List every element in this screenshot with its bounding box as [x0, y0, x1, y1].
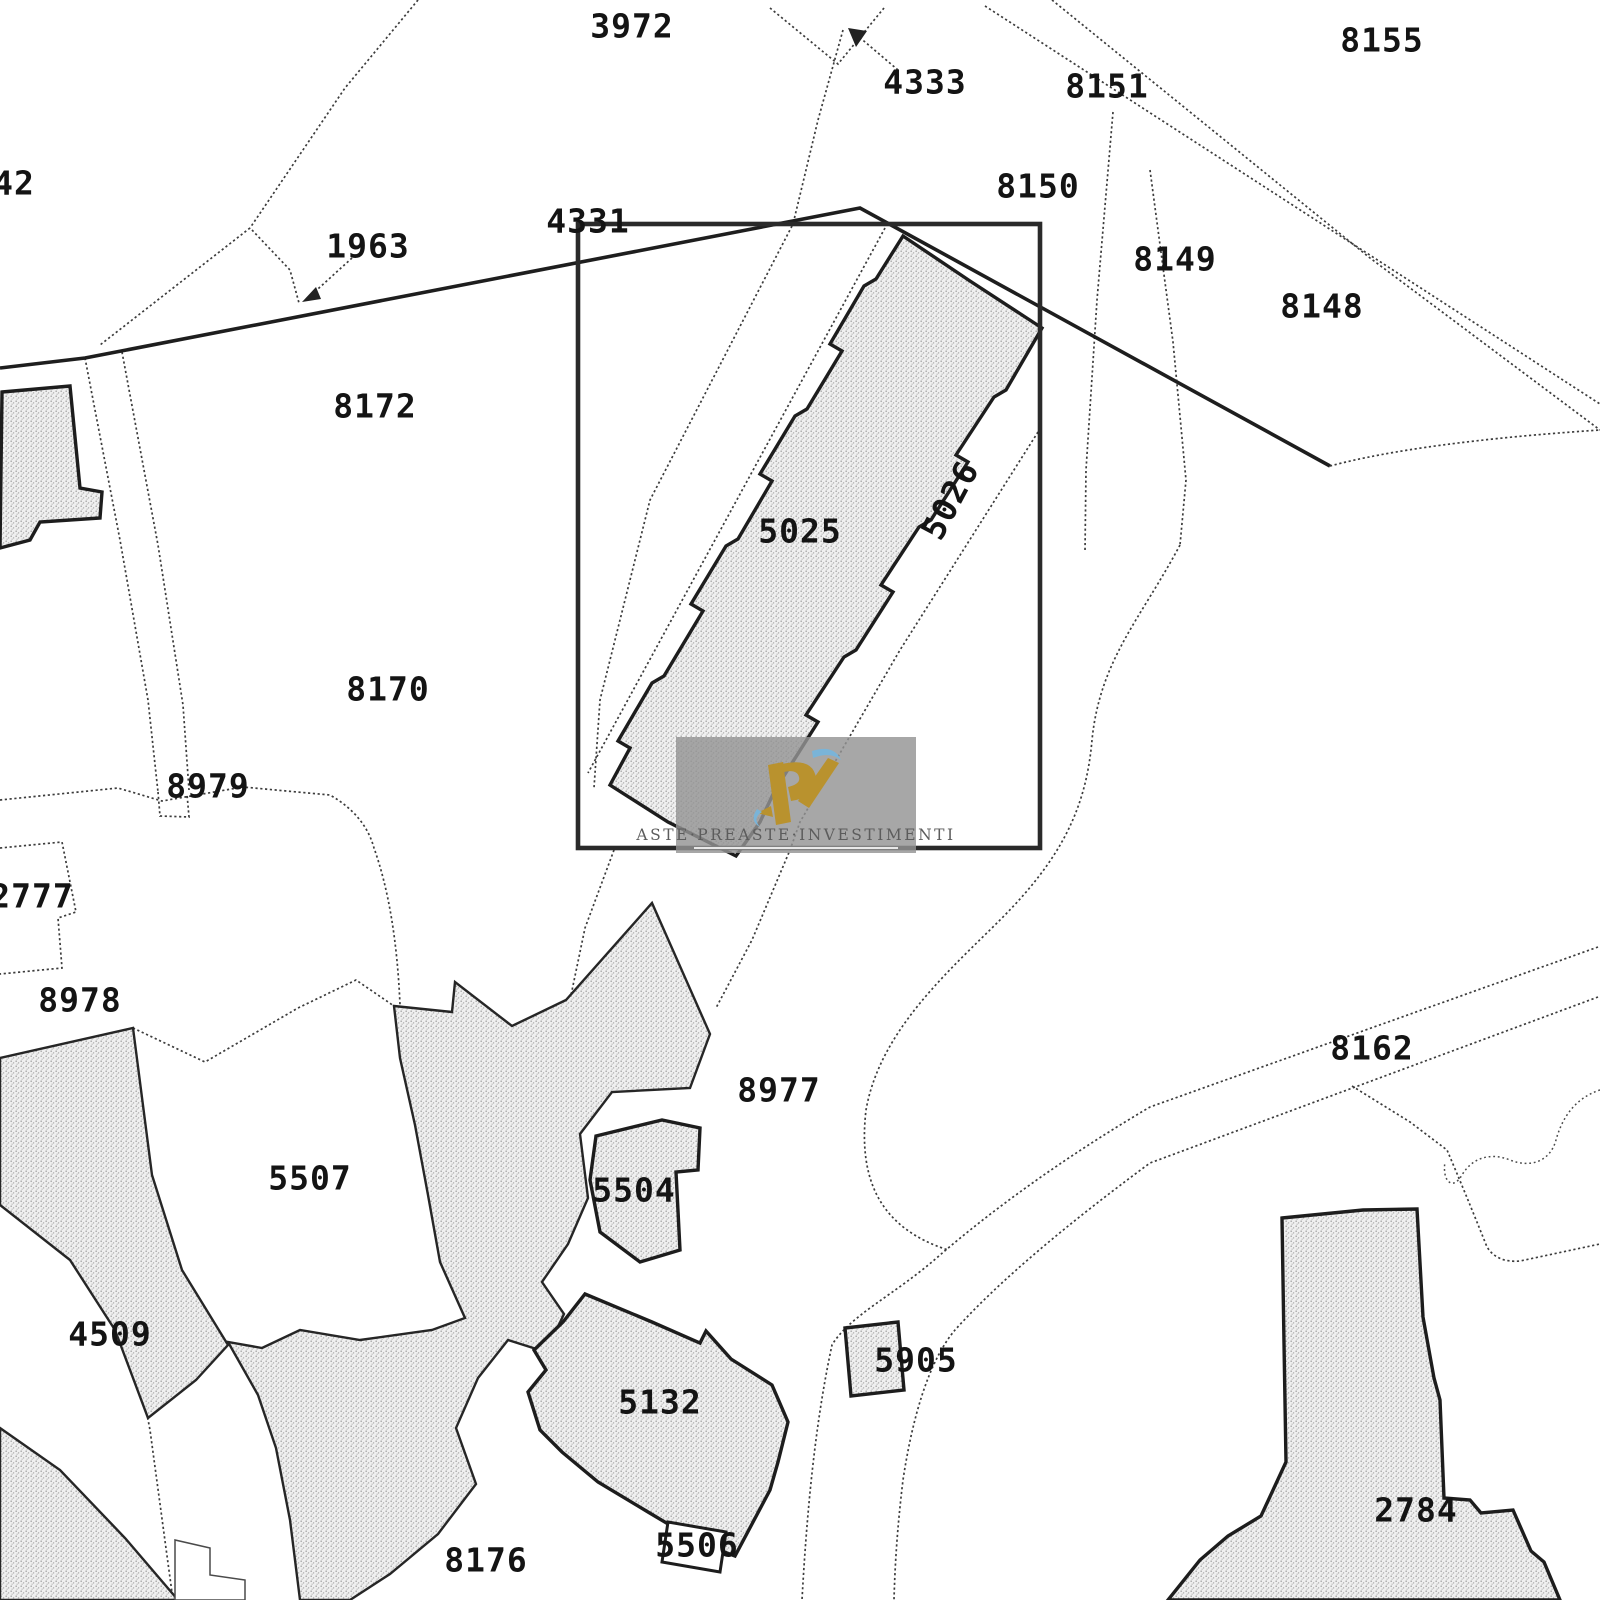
parcel-label-2784: 2784 [1374, 1491, 1457, 1530]
arrowhead-1963 [302, 287, 321, 302]
parcel-label-5132: 5132 [618, 1383, 701, 1422]
parcel-label-4509: 4509 [68, 1315, 151, 1354]
boundary-line [252, 230, 299, 303]
courtyard-jag-line [133, 980, 394, 1062]
parcel-label-8151: 8151 [1065, 67, 1148, 106]
boundary-line [100, 228, 250, 345]
parcel-label-8172: 8172 [333, 387, 416, 426]
parcel-label-8162: 8162 [1330, 1029, 1413, 1068]
building-5132 [528, 1294, 788, 1556]
parcel-label-8170: 8170 [346, 670, 429, 709]
parcel-label-8155: 8155 [1340, 21, 1423, 60]
parcel-label-3972: 3972 [590, 7, 673, 46]
buildings [0, 236, 1560, 1600]
boundary-curve-8977 [864, 545, 1180, 1250]
scallop-line [1444, 1090, 1600, 1183]
arrowhead-4333 [848, 28, 867, 47]
parcel-label-5507: 5507 [268, 1159, 351, 1198]
parcel-label-8176: 8176 [444, 1541, 527, 1580]
building-complex-left-arm [0, 1028, 228, 1418]
parcel-label-8978: 8978 [38, 981, 121, 1020]
boundary-line [770, 8, 884, 64]
cadastral-map-page: 3972433381558151815081498148421963433181… [0, 0, 1600, 1600]
boundary-line [1150, 170, 1186, 545]
boundary-line [85, 358, 158, 792]
parcel-label-8977: 8977 [737, 1071, 820, 1110]
building-2784 [1168, 1209, 1560, 1600]
bold-boundary-1963 [0, 208, 1330, 466]
parcel-label-1963: 1963 [326, 227, 409, 266]
cadastral-map-canvas: 3972433381558151815081498148421963433181… [0, 0, 1600, 1600]
road-line [1052, 0, 1600, 430]
parcel-label-5504: 5504 [592, 1171, 675, 1210]
road-line-8162 [894, 997, 1598, 1600]
white-step-notch [175, 1540, 245, 1600]
parcel-label-4331: 4331 [546, 202, 629, 241]
parcel-label-8149: 8149 [1133, 240, 1216, 279]
parcel-label-4333: 4333 [883, 63, 966, 102]
parcel-label-2777: 2777 [0, 877, 74, 916]
parcel-label-5905: 5905 [874, 1341, 957, 1380]
boundary-line [1330, 430, 1600, 466]
watermark: ASTE·PREASTE·INVESTIMENTI [635, 737, 955, 853]
parcel-label-8979: 8979 [166, 767, 249, 806]
road-line-8162 [802, 947, 1598, 1600]
boundary-line [793, 30, 843, 224]
building-left-edge [0, 386, 102, 548]
watermark-text: ASTE·PREASTE·INVESTIMENTI [635, 826, 955, 844]
boundary-line [122, 352, 189, 790]
parcel-label-8148: 8148 [1280, 287, 1363, 326]
parcel-label-5506: 5506 [655, 1526, 738, 1565]
parcel-label-8150: 8150 [996, 167, 1079, 206]
building-complex-corner [0, 1428, 178, 1600]
parcel-label-5025: 5025 [758, 512, 841, 551]
parcel-label-42: 42 [0, 164, 35, 203]
boundary-line [250, 0, 418, 228]
